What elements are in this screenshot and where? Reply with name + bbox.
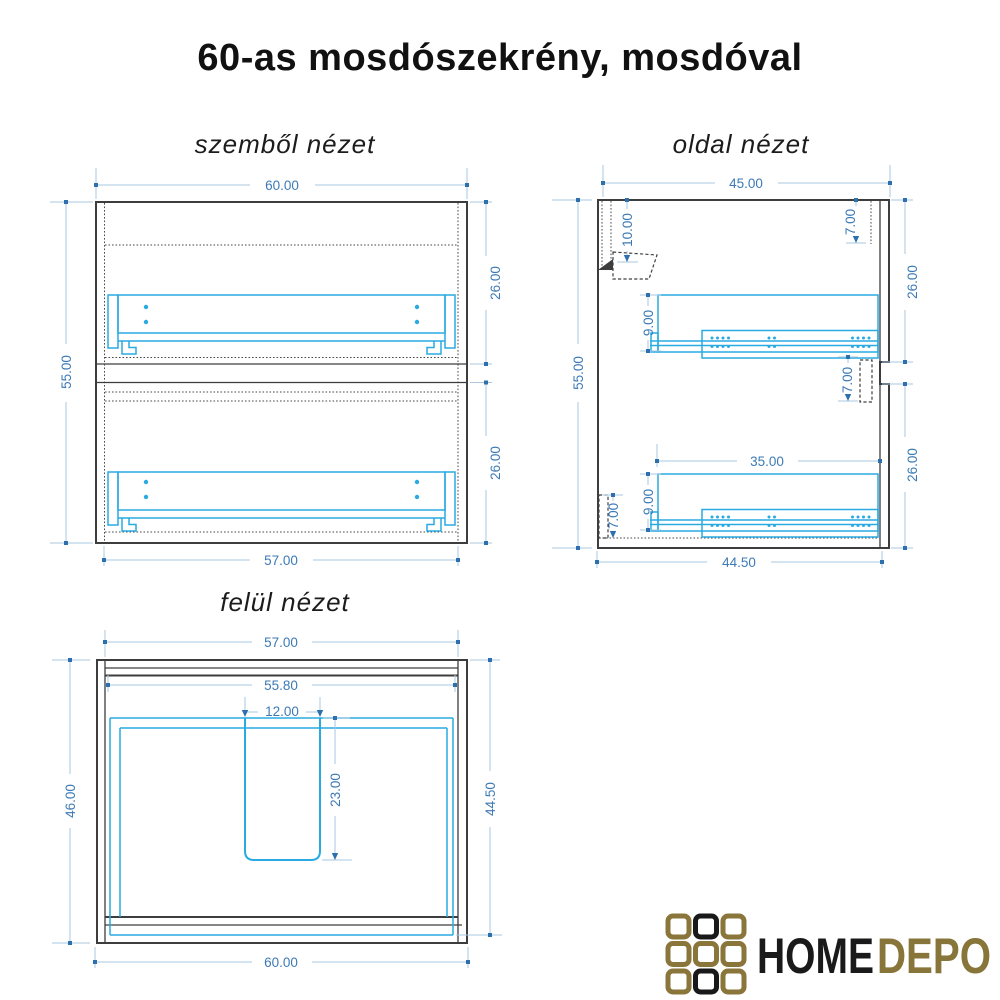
top-cabinet-outline: [97, 660, 467, 943]
page-title: 60-as mosdószekrény, mosdóval: [197, 37, 802, 79]
dim-side-right-upper: 26.00: [905, 265, 920, 299]
front-view-title: szemből nézet: [195, 129, 376, 159]
dim-top-bottom-width: 60.00: [264, 955, 298, 970]
dim-side-front-mid: 7.00: [840, 367, 855, 393]
logo-grid-icon: [668, 916, 744, 992]
rail-holes-lower: [711, 516, 871, 528]
front-view: szemből nézet: [50, 129, 503, 568]
top-view-title: felül nézet: [220, 587, 350, 617]
homedepo-logo: HOME DEPO: [668, 916, 991, 992]
dim-side-plinth: 7.00: [606, 503, 621, 529]
dim-side-front-top: 7.00: [843, 209, 858, 235]
technical-drawing-page: 60-as mosdószekrény, mosdóval szemből né…: [0, 0, 1000, 1000]
front-drawer-lower: [108, 472, 455, 531]
dim-side-left-height: 55.00: [571, 356, 586, 390]
dim-front-right-upper: 26.00: [488, 266, 503, 300]
dim-side-right-lower: 26.00: [905, 448, 920, 482]
drawing-canvas: 60-as mosdószekrény, mosdóval szemből né…: [0, 0, 1000, 1000]
dim-front-left-height: 55.00: [59, 355, 74, 389]
dim-side-rail-upper: 9.00: [641, 310, 656, 336]
dim-side-back-inset: 10.00: [620, 213, 635, 247]
front-cabinet-outline: [96, 202, 467, 543]
side-view: oldal nézet: [552, 129, 920, 570]
dim-top-drain-depth: 23.00: [328, 773, 343, 807]
logo-text-depo: DEPO: [877, 928, 991, 984]
logo-text-home: HOME: [757, 928, 874, 984]
top-interior: [110, 718, 453, 935]
siphon-cutout: [613, 252, 657, 279]
dim-side-top-depth: 45.00: [729, 176, 763, 191]
dim-side-rail-lower: 9.00: [641, 489, 656, 515]
side-drawer-lower: [650, 474, 878, 537]
front-drawer-upper: [108, 295, 455, 354]
dim-side-bottom-depth: 44.50: [722, 555, 756, 570]
rail-holes-upper: [711, 337, 871, 349]
sink-drain-cutout: [245, 718, 320, 860]
side-drawer-upper: [650, 295, 878, 358]
dim-front-top-width: 60.00: [265, 178, 299, 193]
dim-top-drain-width: 12.00: [265, 704, 299, 719]
dim-top-left-depth: 46.00: [63, 784, 78, 818]
dim-top-top-width: 57.00: [264, 635, 298, 650]
dim-front-bottom-width: 57.00: [264, 553, 298, 568]
dim-front-right-lower: 26.00: [488, 446, 503, 480]
top-view: felül nézet: [52, 587, 502, 970]
dim-top-right-depth: 44.50: [483, 782, 498, 816]
dim-top-inner-width: 55.80: [264, 678, 298, 693]
dim-side-rail-length: 35.00: [750, 454, 784, 469]
side-view-title: oldal nézet: [673, 129, 811, 159]
